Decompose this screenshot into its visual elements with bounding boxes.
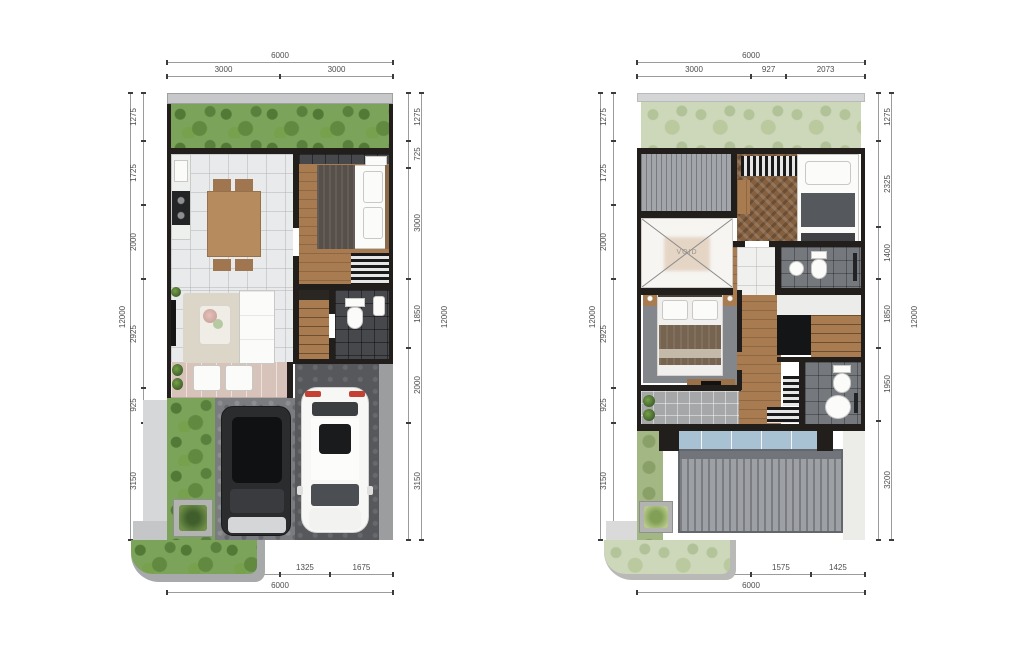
upper-floor-plan: VOID (637, 93, 865, 540)
dim-segment: 1400 (878, 227, 879, 279)
dim-label: 925 (600, 399, 608, 412)
ground-dim-top: 6000 3000 3000 (167, 53, 393, 79)
dim-segment: 1275 (143, 93, 144, 141)
plant (172, 378, 183, 390)
dim-segment: 1725 (613, 141, 614, 205)
wall (637, 288, 733, 295)
dim-segment: 1275 (408, 93, 409, 141)
dim-total-line: 12000 (891, 93, 892, 540)
dim-segment: 1850 (878, 279, 879, 348)
dim-total-line: 6000 (637, 592, 865, 593)
void-label: VOID (642, 249, 732, 256)
wall (389, 104, 393, 362)
plant (643, 395, 655, 407)
car-dark (221, 406, 291, 536)
wall (293, 256, 299, 284)
windshield (311, 484, 359, 506)
side-mirror (297, 486, 303, 495)
planter-plant (644, 506, 668, 528)
wall (637, 385, 741, 391)
shelf-unit (767, 407, 803, 423)
dim-label: 12000 (911, 305, 919, 327)
car-white (301, 387, 369, 533)
wall (777, 357, 865, 362)
wall (733, 241, 745, 247)
dim-label: 3000 (328, 66, 346, 74)
front-garden (171, 104, 389, 148)
bed-blanket (659, 325, 721, 365)
toilet-bowl (347, 307, 363, 329)
side-strip (843, 431, 865, 540)
armchair (225, 365, 253, 391)
wall (641, 211, 737, 218)
dim-segment: 3150 (408, 423, 409, 540)
pillow (662, 300, 688, 320)
pillow (363, 207, 383, 239)
pillow (363, 171, 383, 203)
dim-segment: 1425 (811, 574, 865, 575)
dim-segment: 3200 (878, 421, 879, 540)
wall (731, 154, 737, 218)
floor-plan-sheet: 6000 3000 3000 3000 1325 1675 6000 12000… (0, 0, 1024, 657)
stove (172, 191, 190, 225)
dim-segment: 3000 (408, 168, 409, 280)
dim-segment-line: 3000 3000 (167, 76, 393, 77)
bathtub-basin (825, 395, 851, 419)
dim-total-line: 6000 (637, 62, 865, 63)
dim-segment: 927 (751, 76, 786, 77)
dim-segment: 1850 (408, 279, 409, 348)
tv-panel (171, 300, 176, 346)
dim-segment: 2925 (143, 279, 144, 388)
dining-chair (235, 179, 253, 191)
plant (643, 409, 655, 421)
wall (637, 424, 865, 431)
dim-label: 12000 (119, 305, 127, 327)
dim-segment: 925 (613, 388, 614, 422)
rear-glass (312, 402, 358, 416)
dim-label: 2073 (817, 66, 835, 74)
dim-segment: 3000 (637, 76, 751, 77)
dim-total-line: 6000 (167, 62, 393, 63)
curb (133, 521, 167, 540)
car-hood (228, 517, 286, 533)
car-roof-glass (232, 417, 282, 483)
planter-plant (179, 505, 207, 531)
staircase (299, 290, 329, 360)
car-hood (309, 508, 361, 530)
sofa (239, 290, 275, 364)
roof-frame (680, 451, 841, 459)
upper-dim-top: 6000 3000 927 2073 (637, 53, 865, 79)
toilet-tank (345, 298, 365, 307)
dim-segment-line: 1275 725 3000 1850 2000 3150 (408, 93, 409, 540)
dim-label: 12000 (441, 305, 449, 327)
dim-segment: 1575 (751, 574, 811, 575)
dim-label: 3000 (685, 66, 703, 74)
taillight (305, 391, 321, 397)
dim-segment: 725 (408, 141, 409, 168)
wall (293, 290, 299, 363)
front-lawn (604, 540, 730, 574)
dim-segment: 2000 (408, 348, 409, 423)
wall (737, 290, 742, 352)
dim-segment: 2073 (786, 76, 865, 77)
dining-table (207, 191, 261, 257)
dim-label: 3150 (600, 472, 608, 490)
toilet-bowl (833, 373, 851, 393)
bed-blanket (317, 165, 355, 249)
wardrobe (351, 253, 389, 287)
pillow (805, 161, 851, 185)
ground-floor-plan (167, 93, 393, 540)
dim-segment: 1275 (878, 93, 879, 141)
dim-label: 1725 (600, 164, 608, 182)
dim-label: 927 (762, 66, 775, 74)
dim-label: 6000 (742, 52, 760, 60)
shower-fixture (854, 393, 858, 413)
hallway-tiles (737, 247, 775, 295)
dim-label: 1425 (829, 564, 847, 572)
dim-segment: 3000 (280, 76, 393, 77)
dim-total-line: 6000 (167, 592, 393, 593)
dim-segment: 2325 (878, 141, 879, 228)
dim-label: 1575 (772, 564, 790, 572)
dining-chair (213, 179, 231, 191)
stone-balcony (641, 391, 739, 424)
void-area: VOID (641, 218, 733, 288)
dim-label: 6000 (271, 582, 289, 590)
wall (775, 247, 781, 288)
wall (293, 359, 393, 364)
dim-segment-line: 1275 2325 1400 1850 1950 3200 (878, 93, 879, 540)
dim-segment-line: 3000 927 2073 (637, 76, 865, 77)
dim-label: 6000 (742, 582, 760, 590)
dim-segment: 2000 (143, 205, 144, 280)
armchair (193, 365, 221, 391)
roof-edge (167, 93, 393, 104)
dim-label: 2000 (600, 233, 608, 251)
dim-label: 1275 (130, 108, 138, 126)
dim-segment: 2925 (613, 279, 614, 388)
dim-segment: 3000 (167, 76, 280, 77)
wardrobe (741, 156, 801, 176)
dim-label: 1275 (600, 108, 608, 126)
dim-segment: 1950 (878, 348, 879, 421)
washbasin (789, 261, 804, 276)
dim-label: 2000 (130, 233, 138, 251)
balcony-deck (641, 154, 731, 211)
wall (293, 284, 393, 290)
dim-segment: 2000 (613, 205, 614, 280)
bed-throw (659, 349, 721, 358)
sunroof (319, 424, 351, 454)
wall (167, 148, 393, 154)
dim-segment: 1275 (613, 93, 614, 141)
carport-roof (678, 449, 843, 533)
dim-total-line: 12000 (421, 93, 422, 540)
bed-blanket (801, 193, 855, 227)
wall (775, 288, 865, 295)
flower-decor (213, 319, 223, 329)
desk (737, 180, 750, 214)
dim-segment: 1675 (330, 574, 393, 575)
skylight-band (671, 431, 821, 449)
dining-chair (213, 259, 231, 271)
dim-segment-line: 1275 1725 2000 2925 925 3150 (613, 93, 614, 540)
dim-label: 925 (130, 399, 138, 412)
plant (172, 364, 183, 376)
carport-curb (379, 362, 393, 540)
curb (606, 521, 637, 540)
dim-label: 12000 (589, 305, 597, 327)
wall (329, 338, 335, 359)
staircase (811, 315, 861, 357)
ground-dim-right: 1275 725 3000 1850 2000 3150 12000 (405, 93, 425, 540)
front-lawn (131, 540, 257, 574)
master-bed (657, 290, 723, 376)
roof-garden-strip (641, 102, 861, 148)
side-mirror (367, 486, 373, 495)
taillight (349, 391, 365, 397)
stair-newel (777, 315, 811, 355)
dim-label: 2925 (130, 325, 138, 343)
pillow (692, 300, 718, 320)
roof-edge (637, 93, 865, 102)
stair-landing (299, 290, 329, 300)
toilet-bowl (811, 259, 827, 279)
dim-label: 2925 (600, 325, 608, 343)
toilet-tank (833, 365, 851, 373)
wall (287, 362, 293, 398)
washbasin (373, 296, 385, 316)
stair-landing (777, 295, 861, 315)
wall (817, 431, 833, 451)
wall (659, 431, 679, 451)
upper-dim-right: 1275 2325 1400 1850 1950 3200 12000 (875, 93, 895, 540)
dim-label: 6000 (271, 52, 289, 60)
wall (329, 290, 335, 314)
windshield (230, 489, 284, 513)
dim-label: 1675 (353, 564, 371, 572)
boundary-wall (143, 400, 167, 524)
shower-fixture (853, 253, 857, 281)
upper-dim-left: 12000 1275 1725 2000 2925 925 3150 (596, 93, 616, 540)
dim-label: 3000 (215, 66, 233, 74)
plant (171, 287, 181, 297)
dim-segment: 1725 (143, 141, 144, 205)
dim-label: 3150 (130, 472, 138, 490)
wall (293, 148, 299, 228)
wall (637, 148, 865, 154)
kitchen-sink (174, 160, 188, 182)
wall (769, 241, 865, 247)
toilet-tank (811, 251, 827, 259)
dim-label: 1725 (130, 164, 138, 182)
dim-segment: 1325 (280, 574, 330, 575)
dining-chair (235, 259, 253, 271)
dim-label: 1325 (296, 564, 314, 572)
wall (799, 362, 805, 424)
